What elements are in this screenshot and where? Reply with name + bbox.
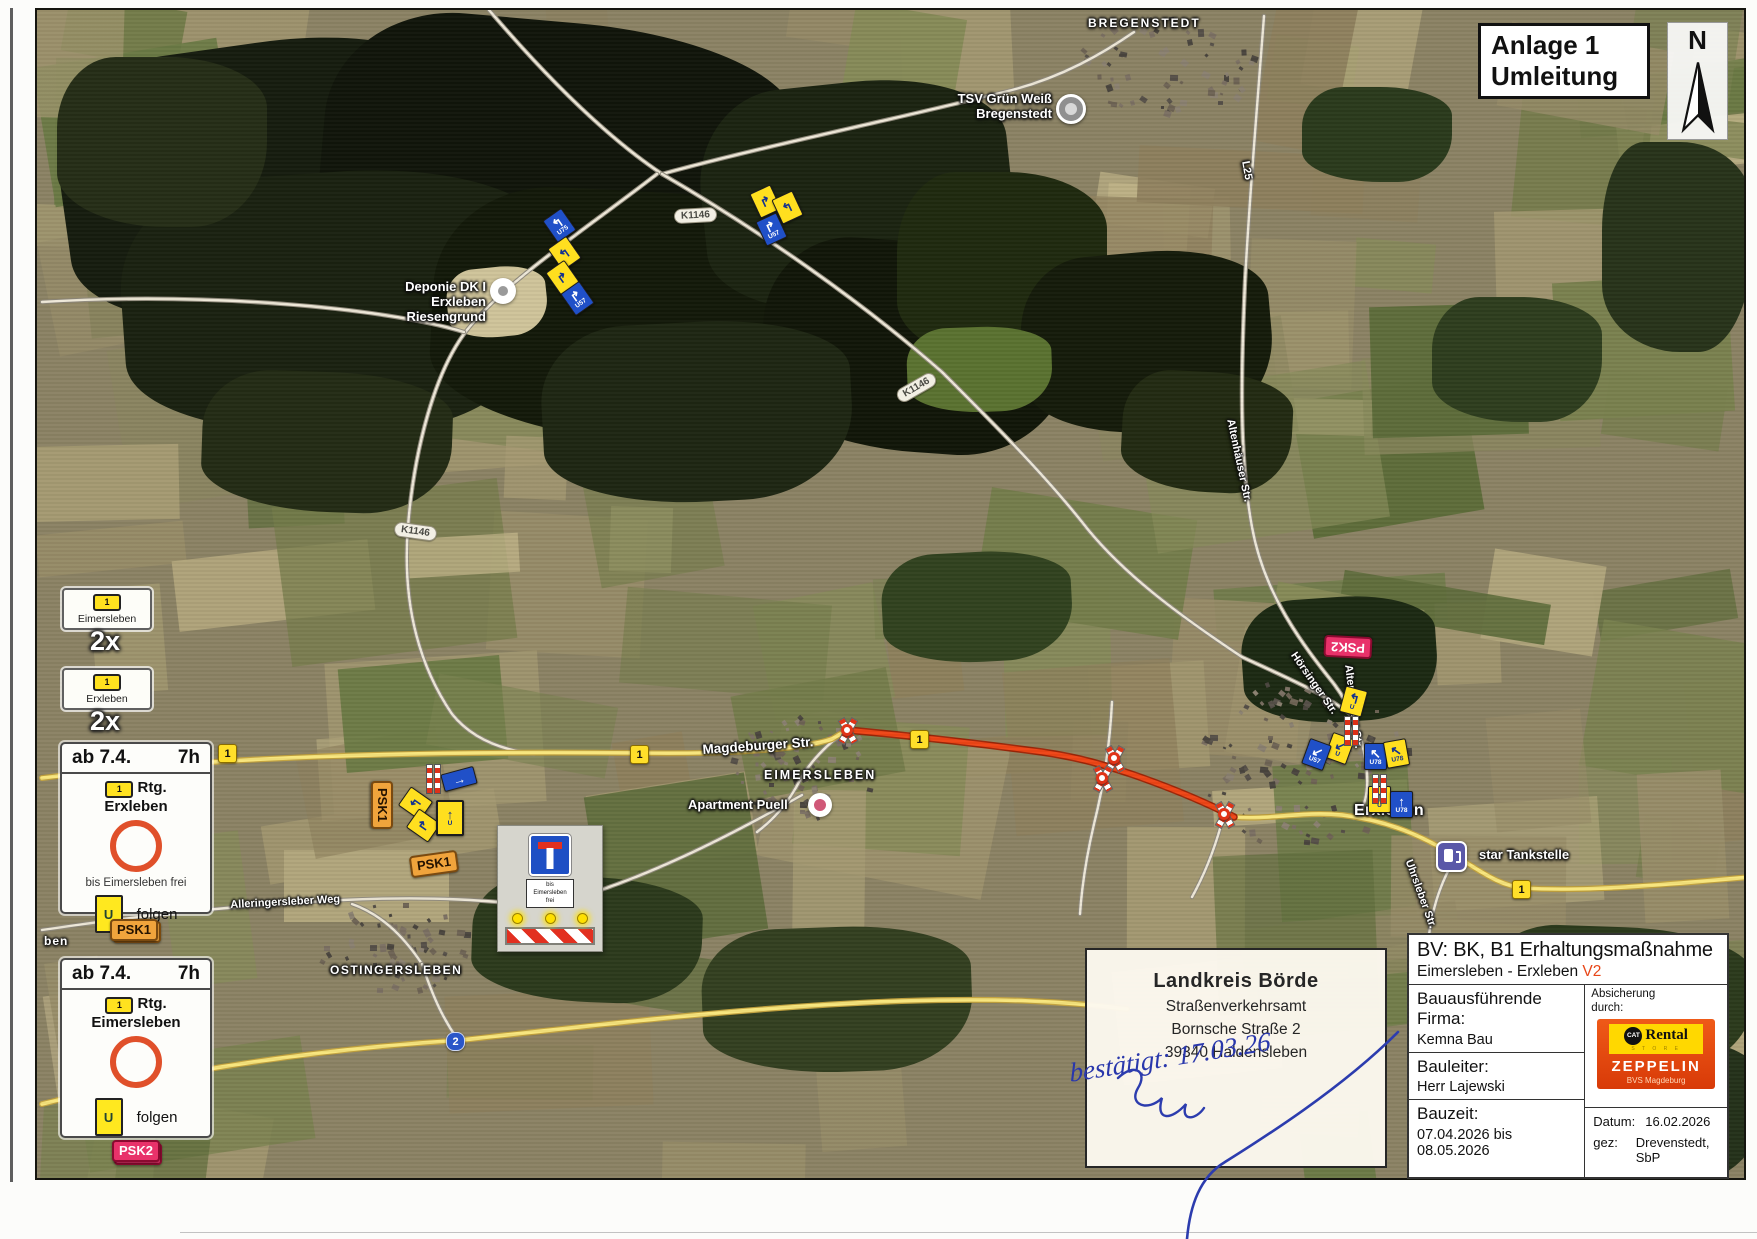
- psk1-badge: PSK1: [409, 850, 460, 878]
- closure-sub-line: Eimersleben: [527, 890, 573, 898]
- detour-arrow-icon: ↖: [1370, 747, 1381, 760]
- closure-crossing-marker: [1089, 765, 1115, 791]
- store-logo-text: S T O R E: [1609, 1046, 1703, 1054]
- detour-arrow-icon: ↱: [758, 193, 773, 209]
- barrier-bar-icon: [505, 927, 595, 945]
- detour-sign: ↰U: [1339, 685, 1368, 717]
- street-label: Alleringersleber Weg: [230, 893, 340, 911]
- stamp-office: Straßenverkehrsamt: [1087, 998, 1385, 1016]
- anlage-line2: Umleitung: [1491, 61, 1637, 92]
- zeppelin-sub-text: BVS Magdeburg: [1597, 1076, 1715, 1085]
- town-label: EIMERSLEBEN: [764, 768, 876, 782]
- datum-label: Datum:: [1593, 1114, 1645, 1129]
- poi-label: star Tankstelle: [1479, 848, 1599, 863]
- anlage-title-box: Anlage 1 Umleitung: [1478, 23, 1650, 99]
- route-1-shield-icon: 1: [93, 594, 121, 611]
- psk1-badge: PSK1: [110, 919, 158, 941]
- route-shield: 1: [1512, 880, 1531, 899]
- detour-arrow-icon: →: [451, 771, 467, 787]
- anlage-line1: Anlage 1: [1491, 30, 1637, 61]
- direction-label: Rtg.: [138, 779, 167, 796]
- valid-time: 7h: [178, 747, 200, 769]
- route-shield: 1: [910, 730, 929, 749]
- valid-time: 7h: [178, 963, 200, 985]
- street-label: L25: [1239, 160, 1255, 181]
- fuel-poi-marker-icon: [1436, 841, 1467, 872]
- bauzeit-value: 07.04.2026 bis 08.05.2026: [1417, 1127, 1576, 1159]
- warning-lamps-icon: [512, 913, 588, 924]
- bauzeit-label: Bauzeit:: [1417, 1104, 1576, 1124]
- road-number-pill: K1146: [674, 207, 718, 224]
- stamp-authority: Landkreis Börde: [1087, 970, 1385, 993]
- detour-arrow-icon: ↑: [1398, 795, 1405, 808]
- legend-sign-eimersleben: 1 Eimersleben: [62, 588, 152, 630]
- north-arrow-icon: [1676, 56, 1720, 138]
- dead-end-sign-icon: [529, 834, 571, 876]
- north-arrow-box: N: [1667, 22, 1728, 140]
- datum-value: 16.02.2026: [1645, 1114, 1710, 1129]
- direction-destination: Eimersleben: [68, 1014, 204, 1031]
- detour-sign: ↑U: [436, 800, 464, 836]
- legend-count-2: 2x: [90, 706, 120, 737]
- detour-route-label: U78: [1391, 756, 1404, 764]
- route-shield: 1: [630, 745, 649, 764]
- restriction-note: bis Eimersleben frei: [68, 877, 204, 889]
- scan-edge-shadow: [10, 8, 13, 1182]
- poi-label: TSV Grün Weiß Bregenstedt: [932, 92, 1052, 122]
- route-1-shield-icon: 1: [105, 997, 133, 1014]
- detour-sign: ↖U78: [1383, 738, 1410, 769]
- direction-label: Rtg.: [138, 995, 167, 1012]
- street-label: Hörsinger Str.: [1288, 650, 1340, 717]
- poi-label: Apartment Puell: [688, 798, 803, 813]
- psk1-badge: PSK1: [371, 781, 393, 829]
- legend-sign-erxleben: 1 Erxleben: [62, 668, 152, 710]
- project-info-box: BV: BK, B1 Erhaltungsmaßnahme Eimerslebe…: [1407, 933, 1729, 1179]
- bauleiter-label: Bauleiter:: [1417, 1057, 1576, 1077]
- gez-value: Drevenstedt, SbP: [1636, 1135, 1719, 1165]
- no-entry-circle-icon: [110, 1036, 162, 1088]
- valid-from: ab 7.4.: [72, 747, 131, 769]
- legend-sign-town: Erxleben: [86, 693, 127, 705]
- detour-route-label: U78: [1396, 808, 1408, 815]
- detour-arrow-icon: ↰: [780, 199, 795, 215]
- street-label: Uhrsleber Str.: [1402, 858, 1439, 930]
- cat-logo-icon: CAT: [1624, 1027, 1642, 1045]
- closure-crossing-marker: [834, 717, 860, 743]
- detour-sign: ↰U75: [542, 208, 576, 243]
- road-number-pill: K1146: [894, 370, 939, 404]
- closure-sub-line: frei: [527, 898, 573, 906]
- route-shield: 2: [446, 1032, 465, 1051]
- legend-count-1: 2x: [90, 626, 120, 657]
- road-number-pill: K1146: [393, 521, 438, 542]
- sport-poi-marker-icon: [1056, 94, 1086, 124]
- closure-crossing-marker: [1211, 801, 1237, 827]
- closure-sub-line: bis: [527, 882, 573, 890]
- project-version: V2: [1582, 963, 1601, 980]
- route-1-shield-icon: 1: [105, 781, 133, 798]
- project-title: BV: BK, B1 Erhaltungsmaßnahme: [1417, 939, 1719, 962]
- route-1-shield-icon: 1: [93, 674, 121, 691]
- legend-sign-town: Eimersleben: [78, 613, 136, 625]
- folgen-label: folgen: [137, 1109, 178, 1126]
- barrier-poles-icon: [426, 764, 440, 792]
- street-label: Magdeburger Str.: [702, 734, 814, 757]
- firma-value: Kemna Bau: [1417, 1032, 1576, 1048]
- detour-route-label: U: [1334, 751, 1341, 759]
- north-label: N: [1668, 25, 1727, 56]
- scanned-detour-plan-page: BREGENSTEDTEIMERSLEBENOSTINGERSLEBENErxl…: [0, 0, 1757, 1239]
- detour-arrow-icon: ↰: [556, 245, 572, 262]
- detour-arrow-icon: ↱: [415, 817, 432, 833]
- apt-poi-marker-icon: [808, 793, 832, 817]
- detour-arrow-icon: ↱: [554, 269, 570, 286]
- poi-label: Deponie DK I Erxleben Riesengrund: [362, 280, 486, 325]
- dep-poi-marker-icon: [490, 278, 516, 304]
- detour-sign: ↙U57: [1301, 738, 1332, 771]
- detour-route-label: U: [448, 821, 453, 828]
- route-shield: 1: [218, 744, 237, 763]
- restriction-box-rtg-erxleben: ab 7.4. 7h 1 Rtg. Erxleben bis Eimersleb…: [60, 742, 212, 914]
- project-subtitle: Eimersleben - Erxleben: [1417, 963, 1578, 980]
- town-label: BREGENSTEDT: [1088, 17, 1201, 31]
- town-label: OSTINGERSLEBEN: [330, 964, 462, 978]
- bauleiter-value: Herr Lajewski: [1417, 1079, 1576, 1095]
- street-label: Altenhäuser Str.: [1224, 418, 1254, 503]
- zeppelin-rental-logo: CAT Rental S T O R E ZEPPELIN BVS Magdeb…: [1597, 1019, 1715, 1089]
- barrier-poles-icon: [1372, 774, 1386, 802]
- psk2-badge: PSK2: [1323, 635, 1372, 659]
- closure-sign-panel: bis Eimersleben frei: [497, 825, 603, 952]
- firma-label: Bauausführende Firma:: [1417, 989, 1576, 1030]
- absicherung-label: Absicherung durch:: [1591, 988, 1721, 1016]
- detour-route-label: U: [1349, 704, 1355, 711]
- detour-route-label: U78: [1370, 760, 1382, 767]
- closure-sub-sign: bis Eimersleben frei: [526, 879, 574, 908]
- detour-sign: →: [440, 766, 478, 792]
- restriction-box-rtg-eimersleben: ab 7.4. 7h 1 Rtg. Eimersleben U folgen: [60, 958, 212, 1138]
- gez-label: gez:: [1593, 1135, 1635, 1165]
- zeppelin-logo-text: ZEPPELIN: [1597, 1058, 1715, 1075]
- scan-artifact-line: [180, 1232, 1757, 1233]
- direction-destination: Erxleben: [68, 798, 204, 815]
- valid-from: ab 7.4.: [72, 963, 131, 985]
- psk2-badge: PSK2: [112, 1140, 160, 1162]
- rental-logo-text: Rental: [1645, 1027, 1688, 1044]
- no-entry-circle-icon: [110, 820, 162, 872]
- barrier-poles-icon: [1344, 716, 1358, 744]
- detour-u-sign-icon: U: [95, 1098, 123, 1136]
- detour-sign: ↑U78: [1390, 791, 1413, 818]
